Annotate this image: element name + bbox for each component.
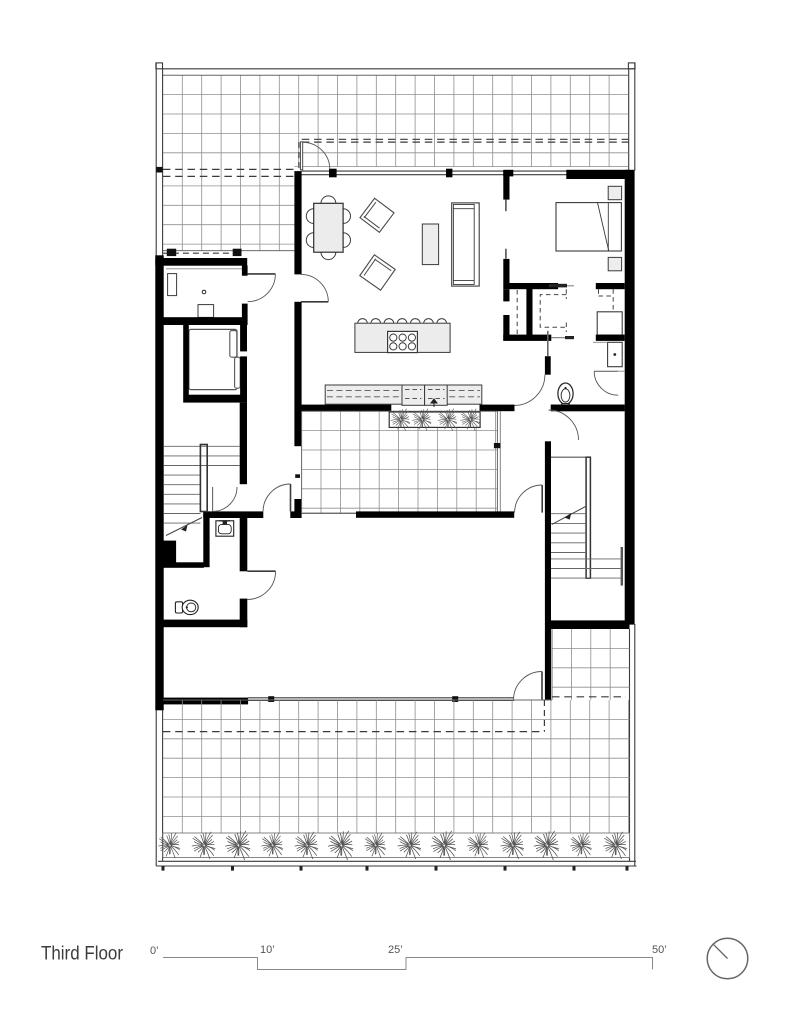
- svg-text:50’: 50’: [652, 944, 667, 956]
- svg-text:0’: 0’: [150, 945, 159, 957]
- svg-text:Third Floor: Third Floor: [41, 941, 123, 963]
- svg-text:25’: 25’: [388, 944, 403, 956]
- svg-text:10’: 10’: [260, 944, 275, 956]
